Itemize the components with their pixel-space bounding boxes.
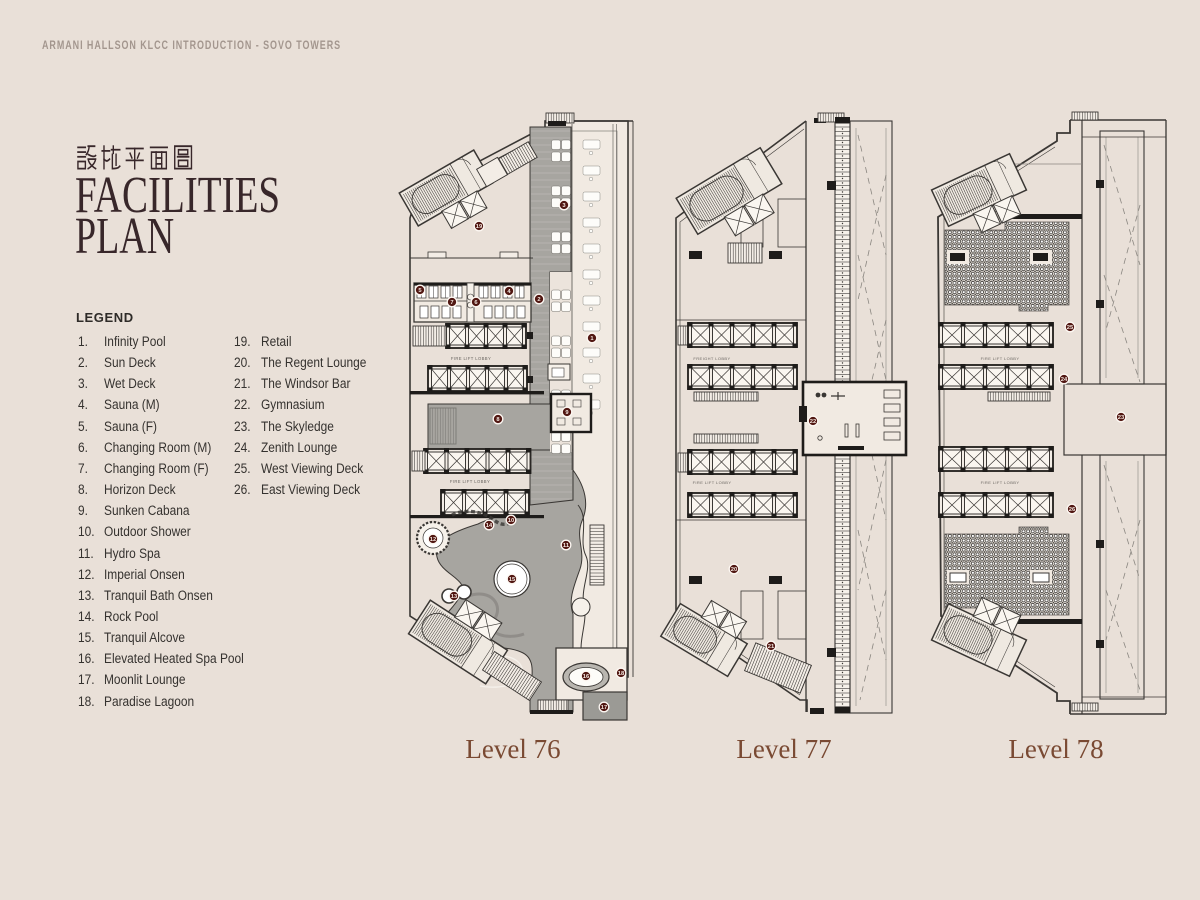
svg-text:11: 11 (563, 543, 570, 549)
svg-text:FIRE LIFT LOBBY: FIRE LIFT LOBBY (981, 356, 1020, 361)
svg-text:2: 2 (537, 297, 540, 303)
svg-text:FIRE LIFT LOBBY: FIRE LIFT LOBBY (450, 479, 490, 484)
svg-text:18: 18 (618, 671, 625, 677)
svg-text:FIRE LIFT LOBBY: FIRE LIFT LOBBY (693, 480, 732, 485)
svg-text:17: 17 (601, 705, 607, 711)
svg-text:25: 25 (1067, 325, 1074, 331)
svg-text:7: 7 (450, 300, 453, 306)
svg-text:16: 16 (583, 674, 590, 680)
svg-text:15: 15 (509, 577, 516, 583)
svg-text:10: 10 (508, 518, 514, 524)
svg-text:14: 14 (486, 523, 493, 529)
svg-text:24: 24 (1061, 377, 1068, 383)
svg-text:26: 26 (1069, 507, 1076, 513)
svg-text:21: 21 (768, 644, 775, 650)
svg-text:FIRE LIFT LOBBY: FIRE LIFT LOBBY (981, 480, 1020, 485)
svg-text:FREIGHT LOBBY: FREIGHT LOBBY (693, 356, 730, 361)
svg-text:23: 23 (1118, 415, 1125, 421)
svg-text:12: 12 (430, 537, 436, 543)
svg-text:13: 13 (451, 594, 458, 600)
svg-text:20: 20 (731, 567, 737, 573)
svg-text:19: 19 (476, 224, 483, 230)
svg-text:FIRE LIFT LOBBY: FIRE LIFT LOBBY (451, 356, 491, 361)
svg-text:22: 22 (810, 419, 816, 425)
